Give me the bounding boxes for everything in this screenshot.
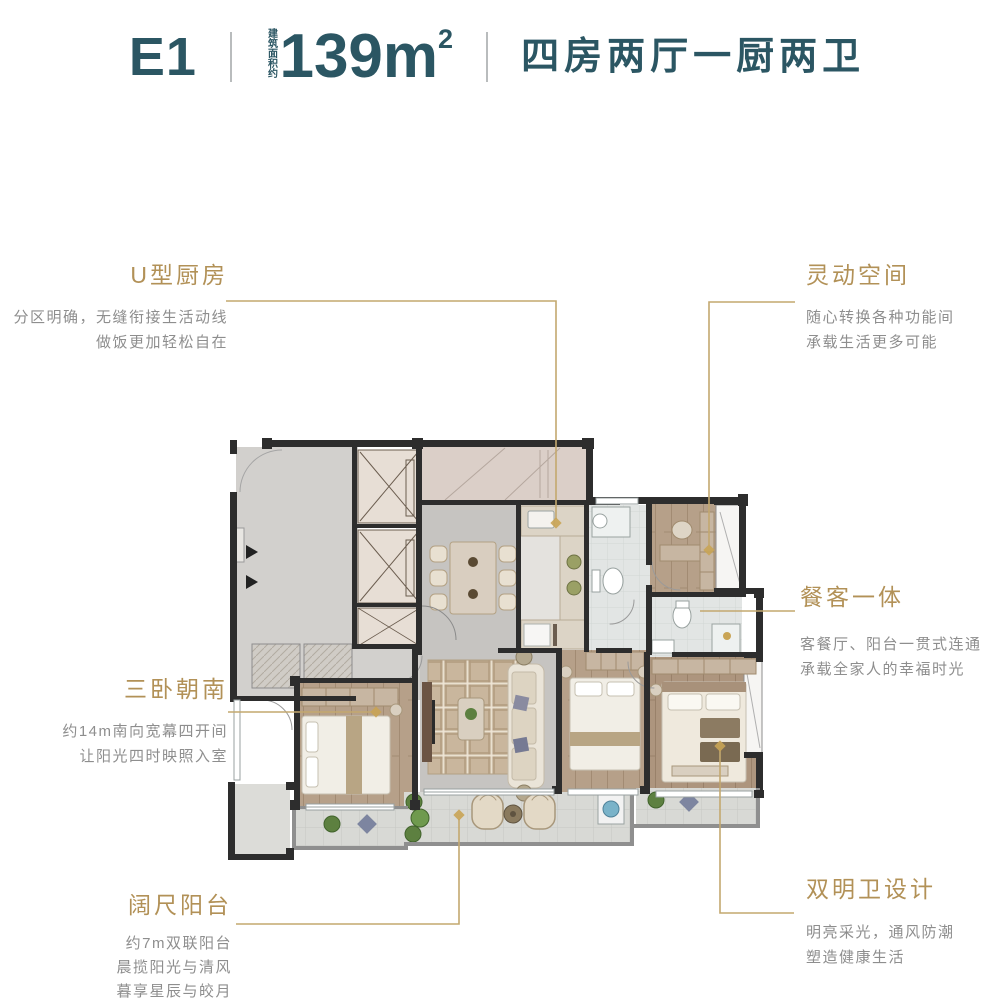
callout-kitchen-line: 做饭更加轻松自在 xyxy=(0,330,228,355)
bed-runner xyxy=(346,716,362,794)
stove-burner xyxy=(567,555,581,569)
area-group: 建筑面积约 139m 2 xyxy=(265,26,453,88)
callout-flex-title: 灵动空间 xyxy=(806,262,994,290)
callout-kitchen-title: U型厨房 xyxy=(0,262,228,290)
callout-bedrooms-line: 约14m南向宽幕四开间 xyxy=(0,719,228,744)
callout-flex-space: 灵动空间 随心转换各种功能间 承载生活更多可能 xyxy=(806,262,994,355)
pillow xyxy=(513,695,530,712)
plant-icon xyxy=(324,816,340,832)
unit-name: E1 xyxy=(129,30,197,84)
callout-balcony-line: 晨揽阳光与清风 xyxy=(0,956,232,980)
rooms-summary: 四房两厅一厨两卫 xyxy=(521,38,865,76)
tv xyxy=(432,700,435,744)
bed-throw xyxy=(700,718,740,738)
callout-dining-title: 餐客一体 xyxy=(800,584,994,612)
callout-dining-line: 承载全家人的幸福时光 xyxy=(800,657,994,682)
area-label-vertical: 建筑面积约 xyxy=(265,28,277,86)
dining-table xyxy=(430,542,516,614)
floor-plan xyxy=(0,0,994,1001)
callout-flex-line: 承载生活更多可能 xyxy=(806,330,994,355)
toilet xyxy=(603,568,623,594)
balcony-left xyxy=(292,808,406,848)
plant-icon xyxy=(465,708,477,720)
nightstand xyxy=(390,704,402,716)
desk xyxy=(660,545,700,561)
balcony-corner xyxy=(232,784,290,854)
callout-bedrooms-title: 三卧朝南 xyxy=(0,676,228,704)
callout-bath-line: 明亮采光，通风防潮 xyxy=(806,920,994,945)
callout-south-bedrooms: 三卧朝南 约14m南向宽幕四开间 让阳光四时映照入室 xyxy=(0,676,228,769)
adjacent-unit-area xyxy=(422,445,590,503)
plant-icon xyxy=(411,809,429,827)
nightstand xyxy=(650,684,662,696)
callout-balcony: 阔尺阳台 约7m双联阳台 晨揽阳光与清风 暮享星辰与皎月 xyxy=(0,892,232,1001)
callout-balcony-title: 阔尺阳台 xyxy=(0,892,232,920)
kitchen-sink xyxy=(528,511,554,528)
callout-bath-title: 双明卫设计 xyxy=(806,876,994,904)
lounge-chair xyxy=(524,794,555,829)
callout-balcony-line: 约7m双联阳台 xyxy=(0,932,232,956)
stove-burner xyxy=(567,581,581,595)
header: E1 建筑面积约 139m 2 四房两厅一厨两卫 xyxy=(0,26,994,88)
bed-runner xyxy=(570,732,640,746)
callout-bath-line: 塑造健康生活 xyxy=(806,945,994,970)
header-divider-2 xyxy=(486,32,488,82)
plant-icon xyxy=(405,826,421,842)
chair xyxy=(672,521,692,539)
bathroom-sink xyxy=(593,514,607,528)
callout-dining-living: 餐客一体 客餐厅、阳台一贯式连通 承载全家人的幸福时光 xyxy=(800,584,994,682)
tv-console xyxy=(422,682,432,762)
wardrobe xyxy=(586,652,644,670)
area-exponent: 2 xyxy=(438,26,453,53)
elevators xyxy=(358,450,420,646)
header-divider-1 xyxy=(230,32,232,82)
lounge-chair xyxy=(472,794,503,829)
bathroom-sink xyxy=(652,640,674,653)
callout-dining-line: 客餐厅、阳台一贯式连通 xyxy=(800,632,994,657)
area-value: 139m xyxy=(279,26,438,88)
callout-kitchen-line: 分区明确，无缝衔接生活动线 xyxy=(0,305,228,330)
callout-bathrooms: 双明卫设计 明亮采光，通风防潮 塑造健康生活 xyxy=(806,876,994,970)
callout-flex-line: 随心转换各种功能间 xyxy=(806,305,994,330)
pillow xyxy=(513,737,529,753)
callout-kitchen: U型厨房 分区明确，无缝衔接生活动线 做饭更加轻松自在 xyxy=(0,262,228,355)
floorplan-page: E1 建筑面积约 139m 2 四房两厅一厨两卫 U型厨房 分区明确，无缝衔接生… xyxy=(0,0,994,1001)
callout-bedrooms-line: 让阳光四时映照入室 xyxy=(0,744,228,769)
callout-balcony-line: 暮享星辰与皎月 xyxy=(0,980,232,1001)
